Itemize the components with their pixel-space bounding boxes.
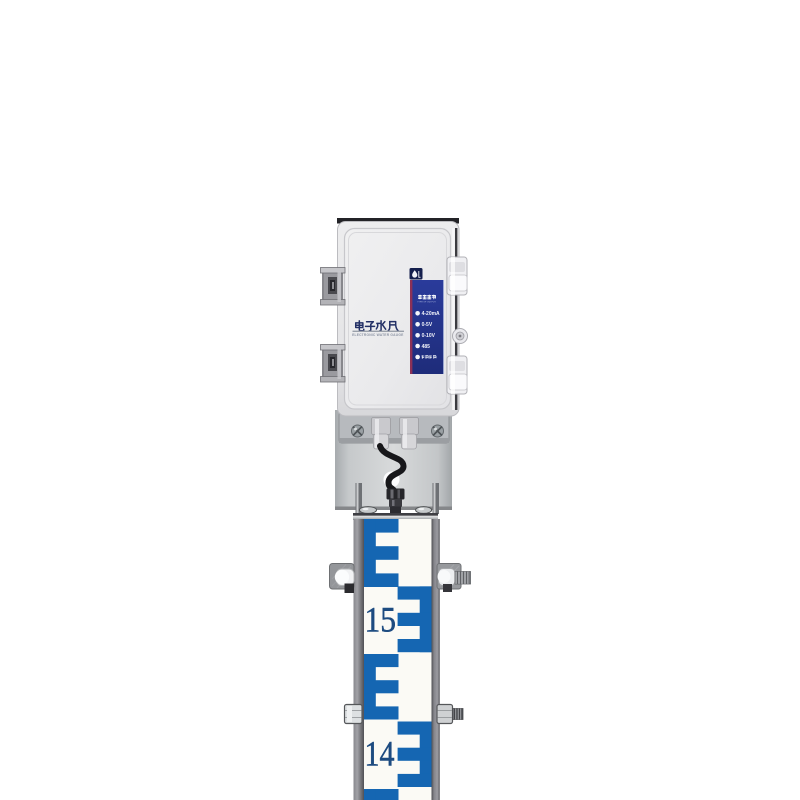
svg-text:15: 15 <box>365 600 397 640</box>
svg-text:14: 14 <box>365 734 395 774</box>
svg-text:485: 485 <box>422 344 431 350</box>
svg-text:0-5V: 0-5V <box>422 322 433 328</box>
svg-text:0-10V: 0-10V <box>422 333 436 339</box>
svg-text:ELECTRONIC WATER GAUGE: ELECTRONIC WATER GAUGE <box>352 333 404 337</box>
svg-text:TYPE OF OUTPUT: TYPE OF OUTPUT <box>417 302 436 304</box>
svg-text:4-20mA: 4-20mA <box>422 311 440 317</box>
